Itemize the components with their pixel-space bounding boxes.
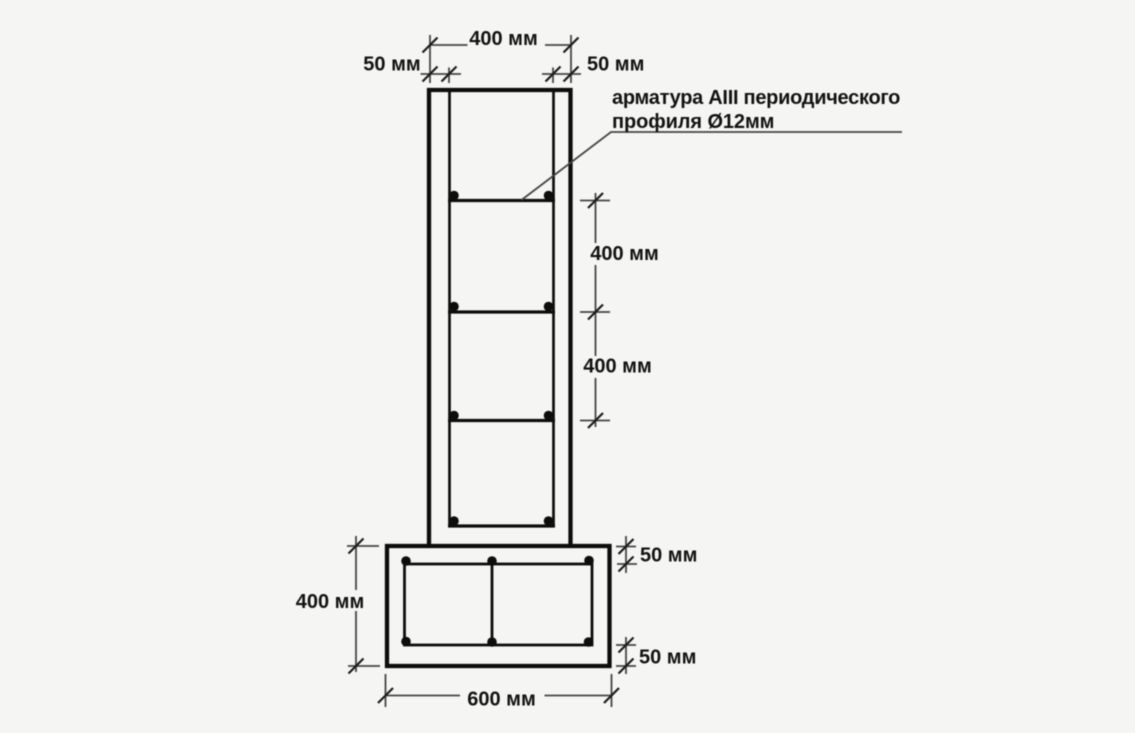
svg-text:600 мм: 600 мм (467, 689, 536, 711)
svg-text:арматура АIII периодического: арматура АIII периодического (612, 87, 900, 109)
svg-text:400 мм: 400 мм (296, 591, 365, 613)
svg-text:50 мм: 50 мм (363, 54, 420, 76)
svg-text:400 мм: 400 мм (590, 243, 659, 265)
svg-text:400 мм: 400 мм (583, 356, 652, 378)
svg-text:400 мм: 400 мм (469, 28, 538, 50)
svg-text:50 мм: 50 мм (639, 647, 696, 669)
svg-text:50 мм: 50 мм (640, 545, 697, 567)
svg-text:профиля Ø12мм: профиля Ø12мм (612, 111, 774, 133)
svg-text:50 мм: 50 мм (587, 54, 644, 76)
